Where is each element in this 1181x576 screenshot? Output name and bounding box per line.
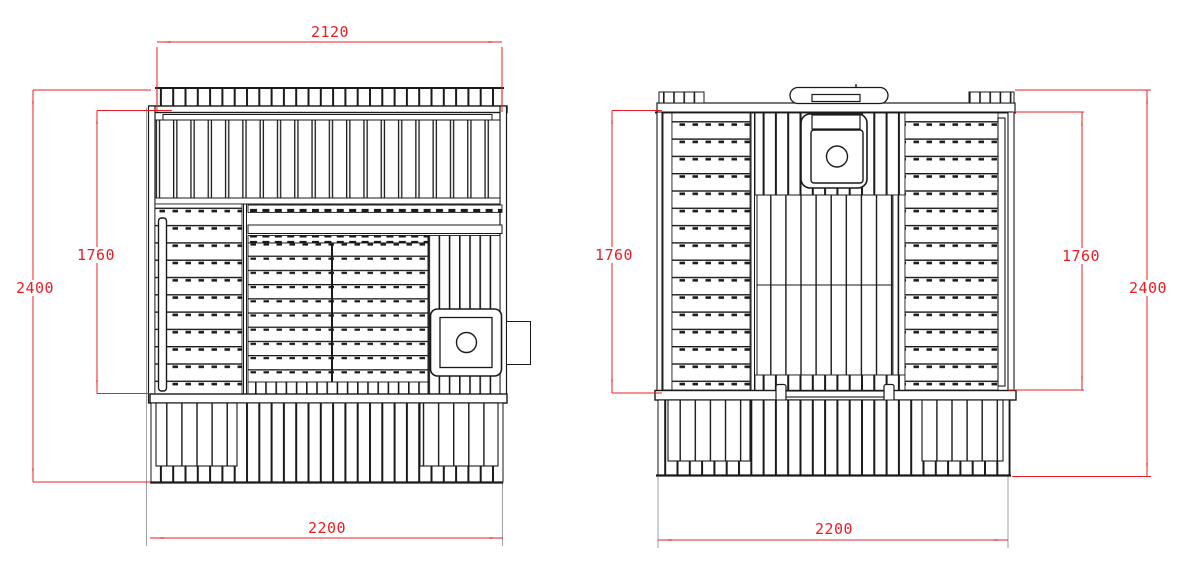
dim-label-right-overall-width: 2200: [811, 521, 857, 537]
heater-door: [440, 318, 492, 368]
sauna-elevation-views-svg: [0, 0, 1181, 576]
dim-label-right-left-wall-height: 1760: [591, 247, 637, 263]
left-wall-boards: [672, 113, 750, 390]
dim-label-right-right-wall-height: 1760: [1058, 248, 1104, 264]
door-planks-lower: [757, 285, 893, 375]
door-threshold-bar: [786, 391, 884, 397]
upper-wall-slats: [155, 120, 500, 198]
roof-band: [657, 103, 1015, 113]
technical-drawing-canvas: 2120 2400 1760 2200 1760 1760 2400 2200: [0, 0, 1181, 576]
roof-fascia-slats: [157, 88, 502, 106]
upper-rail: [163, 115, 492, 121]
roof-plate: [150, 106, 507, 113]
heater-feed-box: [507, 322, 531, 365]
left-corner-board: [663, 113, 672, 390]
bench-post: [159, 218, 167, 391]
mid-rail: [155, 198, 500, 204]
left-view-drawing: [147, 88, 531, 546]
base-access-panel: [668, 400, 750, 461]
right-corner-board: [998, 118, 1005, 386]
dim-label-left-overall-width: 2200: [304, 520, 350, 536]
heater-door: [811, 130, 863, 183]
dim-label-right-overall-height: 2400: [1125, 280, 1171, 296]
door-side-strip: [893, 195, 905, 375]
bench-tick-band: [248, 236, 428, 243]
center-bench-boards: [248, 243, 428, 382]
heater-icon-front: [801, 114, 867, 188]
dim-label-left-wall-height: 1760: [73, 247, 119, 263]
bench-rail: [248, 225, 502, 234]
chimney-icon: [790, 84, 888, 104]
roof-corner-slats: [659, 92, 704, 103]
chimney-collar: [812, 95, 860, 102]
left-bench-boards: [155, 204, 242, 394]
door-planks-upper: [757, 195, 893, 285]
roof-corner-slats: [969, 92, 1014, 103]
right-corner-trim: [1008, 112, 1014, 400]
heater-icon: [431, 309, 531, 376]
under-bench-slats: [248, 382, 428, 394]
heater-top-duct: [812, 115, 860, 129]
base-access-panel: [922, 400, 1003, 461]
right-wall-boards: [905, 113, 998, 390]
dim-label-left-overall-height: 2400: [12, 280, 58, 296]
left-wall-edge: [149, 106, 156, 403]
base-access-panel: [156, 403, 237, 466]
bench-tick-band: [248, 205, 502, 212]
right-view-drawing: [655, 84, 1016, 548]
floor-rail: [150, 394, 507, 403]
left-corner-trim: [657, 112, 662, 400]
dim-label-left-top-width: 2120: [307, 24, 353, 40]
base-access-panel: [420, 403, 498, 466]
